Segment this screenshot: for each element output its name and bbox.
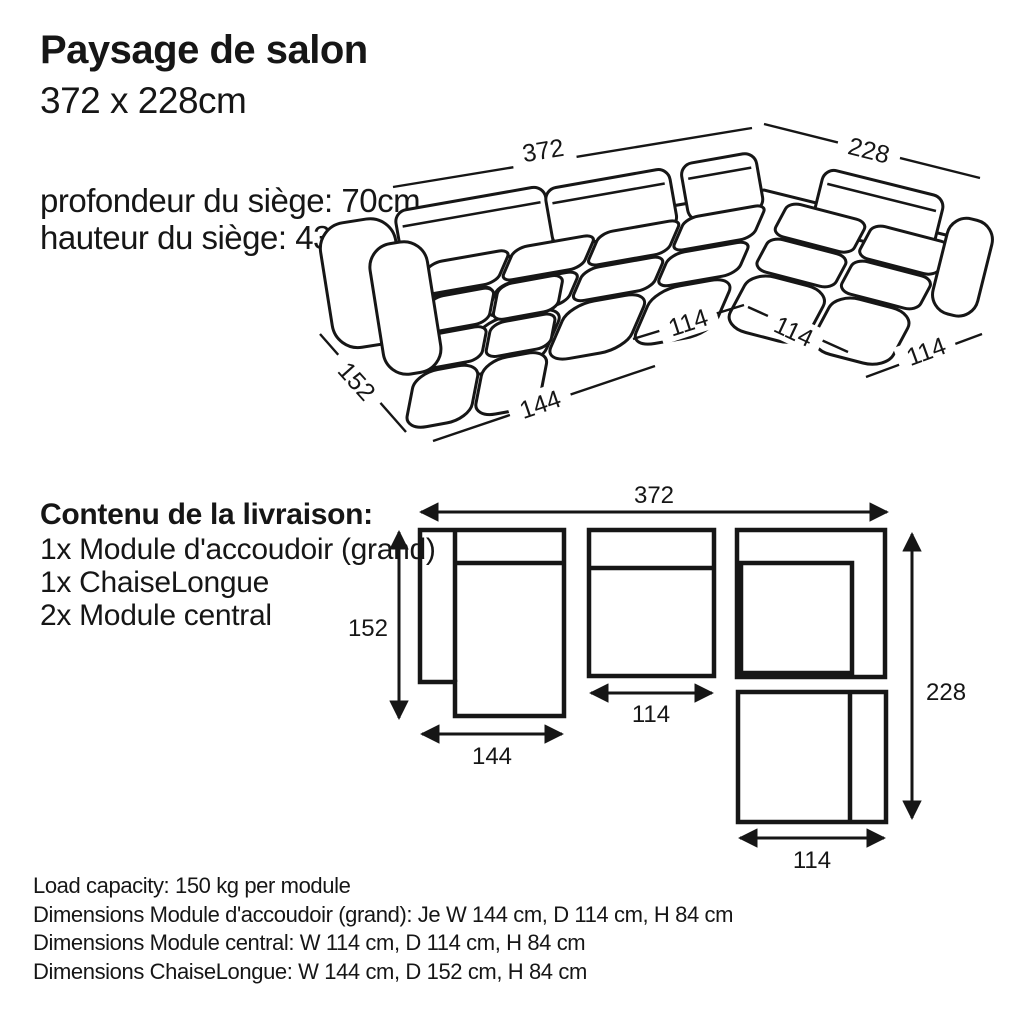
- plan-module-central: [589, 530, 714, 676]
- corner-outline: [737, 530, 885, 677]
- chaise-outline: [420, 530, 564, 716]
- bottom-outline: [738, 692, 886, 822]
- svg-text:228: 228: [845, 132, 892, 169]
- plan-label-152: 152: [348, 615, 388, 642]
- plan-module-corner: [737, 530, 885, 677]
- dim-label-152: 152: [324, 347, 389, 415]
- top-view-plan: 372 152 144 114 114 228: [340, 480, 990, 880]
- plan-label-114-central: 114: [632, 701, 670, 728]
- spec-line-chaiselongue: Dimensions ChaiseLongue: W 144 cm, D 152…: [33, 958, 733, 987]
- page: { "colors": { "ink": "#161616", "paper":…: [0, 0, 1024, 1024]
- dim-label-372: 372: [509, 130, 577, 170]
- plan-module-bottom: [738, 692, 886, 822]
- plan-label-114-bottom: 114: [793, 847, 831, 874]
- sofa-perspective-diagram: 372 228 152 144 114 114 11: [300, 108, 1000, 456]
- corner-seat-inset: [741, 563, 852, 673]
- svg-text:372: 372: [520, 134, 566, 168]
- spec-line-armrest-module: Dimensions Module d'accoudoir (grand): J…: [33, 901, 733, 930]
- plan-label-144: 144: [472, 743, 512, 770]
- plan-label-228: 228: [926, 679, 966, 706]
- spec-line-central-module: Dimensions Module central: W 114 cm, D 1…: [33, 929, 733, 958]
- spec-line-load: Load capacity: 150 kg per module: [33, 872, 733, 901]
- page-title: Paysage de salon: [40, 28, 368, 72]
- central-outline: [589, 530, 714, 676]
- specs-block: Load capacity: 150 kg per module Dimensi…: [33, 872, 733, 986]
- plan-module-chaise: [420, 530, 564, 716]
- plan-label-372: 372: [634, 482, 674, 509]
- dim-label-228: 228: [834, 128, 903, 173]
